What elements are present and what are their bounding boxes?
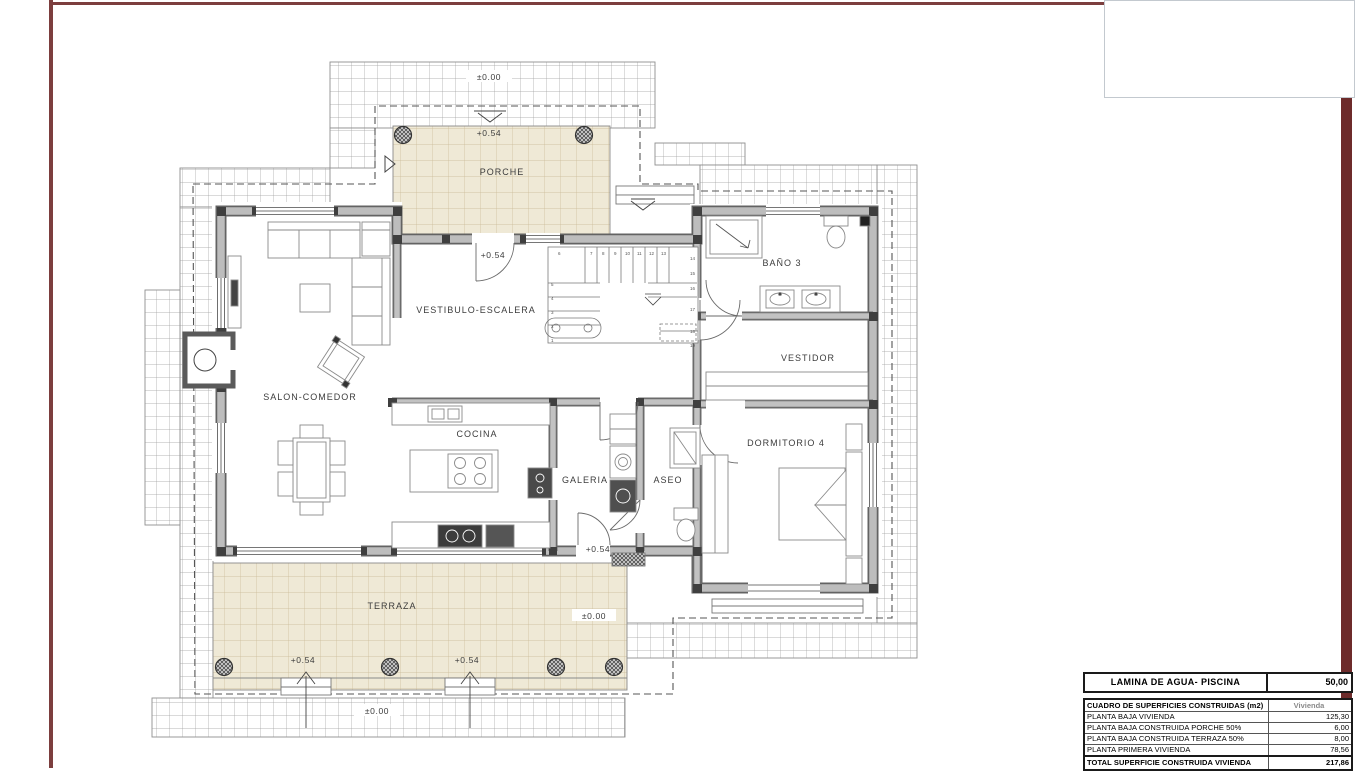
elevation-ground-bottom: ±0.00 [365, 706, 389, 716]
elevation-ground-top: ±0.00 [477, 72, 501, 82]
elevation-terraza-right: +0.54 [455, 655, 480, 665]
sheet-border-right [1341, 0, 1352, 750]
table-total-row: TOTAL SUPERFICIE CONSTRUIDA VIVIENDA 217… [1085, 755, 1351, 769]
title-block-empty-box [1104, 0, 1355, 98]
row-label: PLANTA BAJA CONSTRUIDA PORCHE 50% [1085, 723, 1268, 733]
svg-text:11: 11 [637, 251, 642, 256]
galeria-appliances [610, 414, 636, 512]
porch-side-steps [616, 186, 694, 210]
room-label-cocina: COCINA [456, 429, 497, 439]
svg-text:13: 13 [661, 251, 667, 256]
porch-column [576, 127, 593, 144]
row-label: PLANTA PRIMERA VIVIENDA [1085, 745, 1268, 755]
svg-text:17: 17 [690, 307, 696, 312]
svg-text:15: 15 [690, 271, 696, 276]
row-value: 8,00 [1268, 734, 1351, 744]
total-label: TOTAL SUPERFICIE CONSTRUIDA VIVIENDA [1085, 757, 1268, 769]
elevation-ground-right: ±0.00 [582, 611, 606, 621]
row-label: PLANTA BAJA VIVIENDA [1085, 712, 1268, 722]
elevation-entry: +0.54 [481, 250, 506, 260]
table-row: PLANTA BAJA VIVIENDA 125,30 [1085, 711, 1351, 722]
room-label-vestibulo: VESTIBULO-ESCALERA [416, 305, 536, 315]
total-value: 217,86 [1268, 757, 1351, 769]
pool-table-label: LAMINA DE AGUA- PISCINA [1085, 674, 1268, 691]
pool-table-value: 50,00 [1268, 674, 1351, 691]
row-label: PLANTA BAJA CONSTRUIDA TERRAZA 50% [1085, 734, 1268, 744]
table-header-value: Vivienda [1268, 700, 1351, 711]
room-label-vestidor: VESTIDOR [781, 353, 835, 363]
table-header-label: CUADRO DE SUPERFICIES CONSTRUIDAS (m2) [1085, 700, 1268, 711]
elevation-terraza-left: +0.54 [291, 655, 316, 665]
kitchen-fixtures [392, 403, 552, 548]
svg-text:18: 18 [690, 329, 696, 334]
built-surfaces-table: CUADRO DE SUPERFICIES CONSTRUIDAS (m2) V… [1083, 698, 1353, 771]
room-label-galeria: GALERIA [562, 475, 608, 485]
room-label-salon: SALON-COMEDOR [263, 392, 357, 402]
table-header-row: CUADRO DE SUPERFICIES CONSTRUIDAS (m2) V… [1085, 700, 1351, 711]
row-value: 6,00 [1268, 723, 1351, 733]
terraza-column [548, 659, 565, 676]
floor-plan: 1 2 3 4 5 6 7 8 9 10 11 12 13 14 15 16 1… [0, 0, 1366, 768]
terraza-column [216, 659, 233, 676]
row-value: 125,30 [1268, 712, 1351, 722]
svg-text:10: 10 [625, 251, 631, 256]
svg-text:16: 16 [690, 286, 696, 291]
table-row: PLANTA BAJA CONSTRUIDA PORCHE 50% 6,00 [1085, 722, 1351, 733]
terraza-column [382, 659, 399, 676]
sheet-border-left [49, 0, 53, 768]
elevation-porch: +0.54 [477, 128, 502, 138]
terraza-column [606, 659, 623, 676]
elevation-galeria-exit: +0.54 [586, 544, 611, 554]
porch-area [385, 126, 610, 235]
pool-surface-table: LAMINA DE AGUA- PISCINA 50,00 [1083, 672, 1353, 693]
fireplace [185, 334, 236, 386]
vestidor-closets [706, 372, 868, 400]
room-label-porche: PORCHE [480, 167, 525, 177]
porch-column [395, 127, 412, 144]
room-label-bano3: BAÑO 3 [762, 258, 801, 268]
table-row: PLANTA BAJA CONSTRUIDA TERRAZA 50% 8,00 [1085, 733, 1351, 744]
svg-text:14: 14 [690, 256, 696, 261]
svg-text:19: 19 [690, 343, 696, 348]
room-label-dormitorio4: DORMITORIO 4 [747, 438, 825, 448]
row-value: 78,56 [1268, 745, 1351, 755]
svg-text:12: 12 [649, 251, 655, 256]
room-label-aseo: ASEO [653, 475, 682, 485]
table-row: PLANTA PRIMERA VIVIENDA 78,56 [1085, 744, 1351, 755]
room-label-terraza: TERRAZA [367, 601, 416, 611]
staircase [545, 247, 698, 343]
